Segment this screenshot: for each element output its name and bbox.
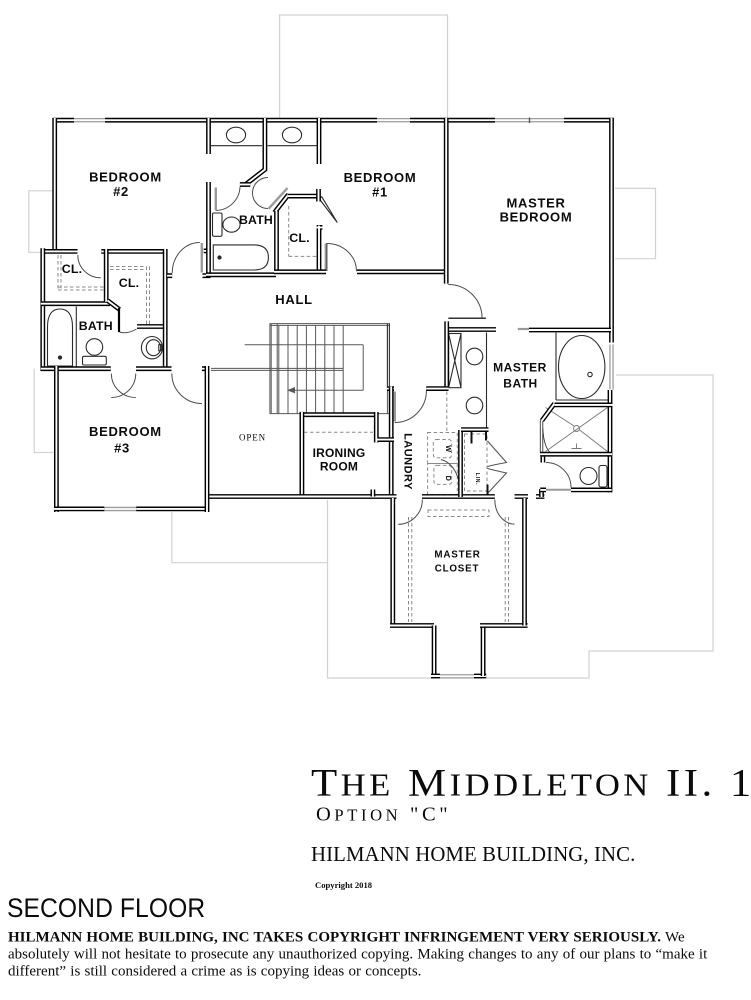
svg-text:CL.: CL. [289, 231, 310, 245]
svg-text:HILMANN HOME BUILDING, INC TAK: HILMANN HOME BUILDING, INC TAKES COPYRIG… [8, 930, 685, 946]
svg-text:MASTER: MASTER [434, 550, 480, 561]
svg-text:absolutely will not hesitate t: absolutely will not hesitate to prosecut… [8, 947, 708, 963]
svg-text:BEDROOM: BEDROOM [344, 170, 417, 185]
svg-text:W: W [444, 445, 453, 452]
svg-text:D: D [444, 476, 453, 482]
svg-text:OPTION "C": OPTION "C" [316, 804, 451, 826]
svg-text:CL.: CL. [62, 262, 83, 276]
svg-text:BEDROOM: BEDROOM [500, 209, 573, 224]
svg-text:ROOM: ROOM [320, 460, 358, 474]
svg-text:BATH: BATH [239, 213, 273, 227]
svg-text:SECOND FLOOR: SECOND FLOOR [7, 894, 205, 923]
svg-text:BEDROOM: BEDROOM [89, 424, 162, 439]
svg-text:CLOSET: CLOSET [435, 564, 480, 575]
svg-text:HILMANN HOME BUILDING, INC.: HILMANN HOME BUILDING, INC. [311, 843, 635, 866]
svg-text:BATH: BATH [79, 319, 113, 333]
svg-text:HALL: HALL [275, 292, 312, 307]
svg-text:different” is still considered: different” is still considered a crime a… [8, 964, 421, 980]
svg-text:MASTER: MASTER [493, 360, 547, 374]
svg-text:Copyright 2018: Copyright 2018 [315, 880, 373, 890]
svg-text:#2: #2 [113, 184, 129, 199]
svg-text:BATH: BATH [503, 376, 537, 390]
svg-text:IRONING: IRONING [313, 446, 366, 460]
svg-text:LAUNDRY: LAUNDRY [402, 433, 414, 490]
svg-text:CL.: CL. [119, 276, 140, 290]
svg-text:MASTER: MASTER [506, 195, 565, 210]
svg-text:BEDROOM: BEDROOM [89, 170, 162, 185]
svg-text:LIN.: LIN. [474, 473, 480, 486]
svg-text:OPEN: OPEN [239, 433, 266, 443]
svg-text:#1: #1 [372, 185, 388, 200]
svg-text:#3: #3 [114, 440, 130, 455]
